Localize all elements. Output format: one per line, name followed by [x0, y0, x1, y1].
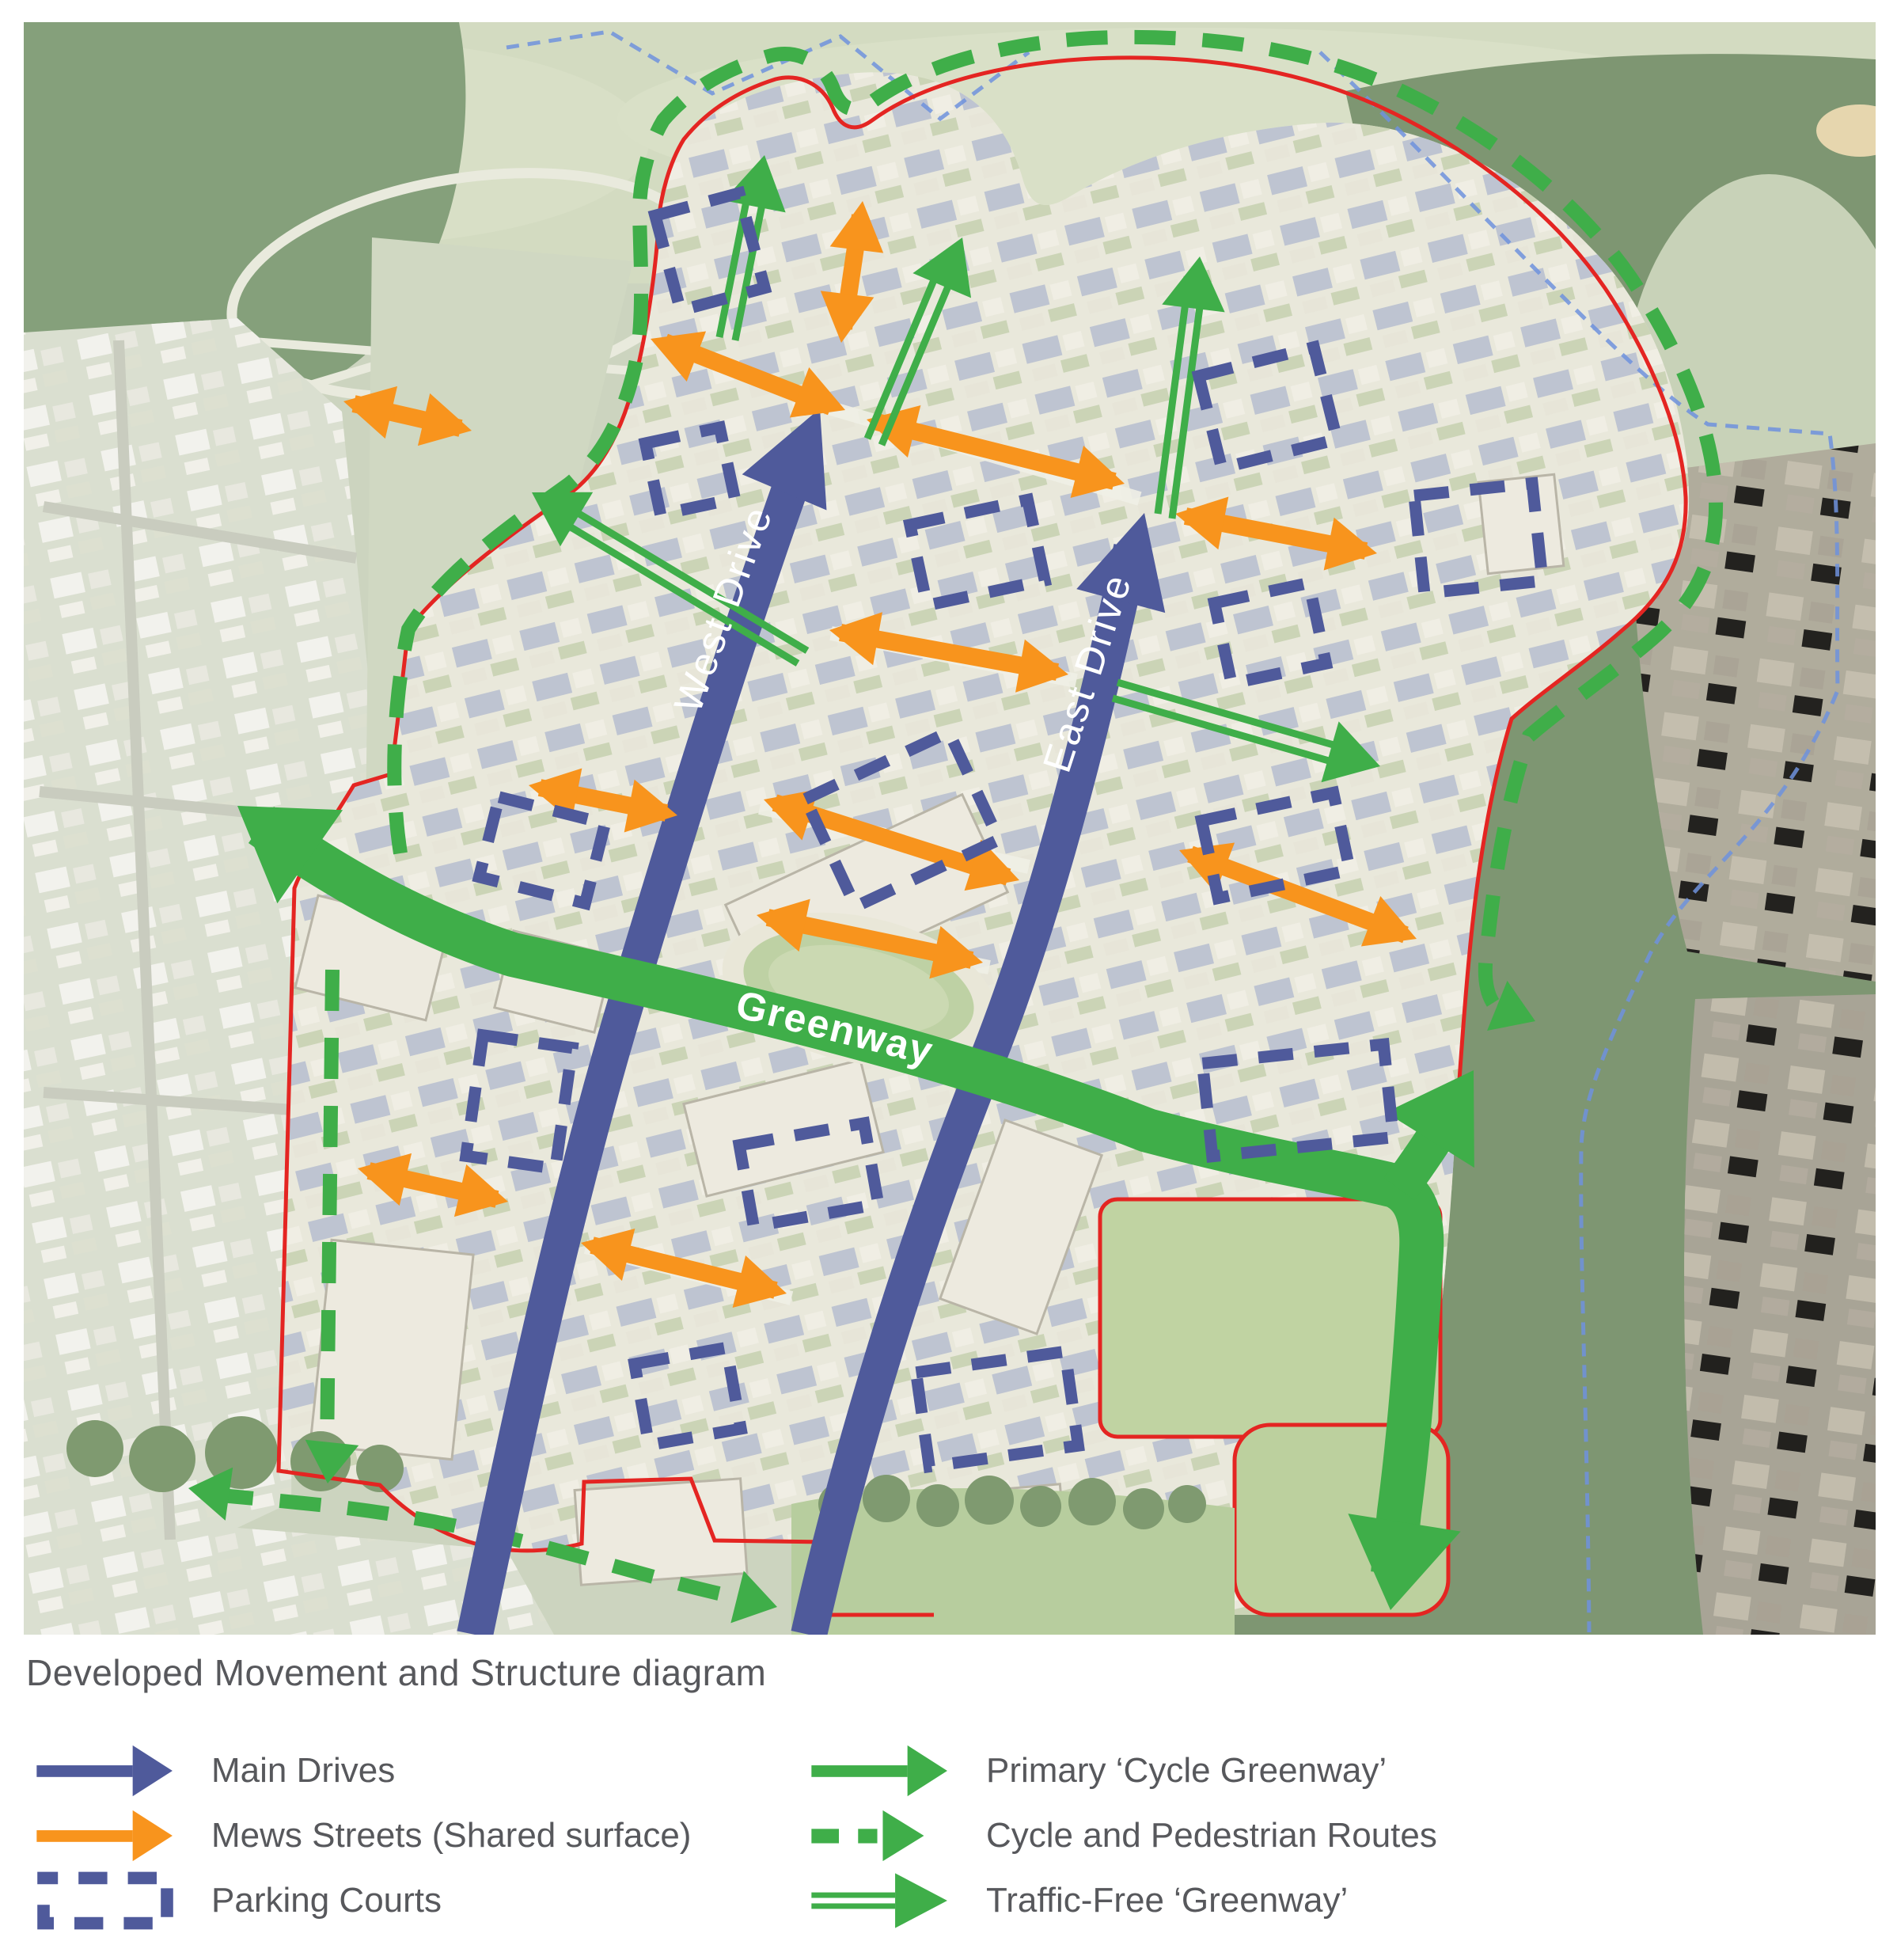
legend-item-mews-streets: Mews Streets (Shared surface) — [26, 1803, 691, 1868]
legend-label: Cycle and Pedestrian Routes — [986, 1816, 1437, 1856]
legend-right-column: Primary ‘Cycle Greenway’ Cycle and Pedes… — [801, 1738, 1437, 1933]
legend-item-main-drives: Main Drives — [26, 1738, 691, 1803]
mews-street-arrow-icon — [26, 1805, 184, 1867]
legend-item-parking-courts: Parking Courts — [26, 1868, 691, 1933]
legend-item-traffic-free-greenway: Traffic-Free ‘Greenway’ — [801, 1868, 1437, 1933]
cycle-greenway-arrow-icon — [801, 1740, 959, 1802]
legend-label: Traffic-Free ‘Greenway’ — [986, 1881, 1348, 1920]
legend-label: Parking Courts — [211, 1881, 442, 1920]
traffic-free-greenway-icon — [801, 1870, 959, 1932]
legend-item-cycle-greenway: Primary ‘Cycle Greenway’ — [801, 1738, 1437, 1803]
map-figure: West Drive East Drive Greenway — [24, 22, 1876, 1635]
legend-label: Mews Streets (Shared surface) — [211, 1816, 691, 1856]
page-root: West Drive East Drive Greenway Developed… — [0, 0, 1897, 1960]
main-drive-arrow-icon — [26, 1740, 184, 1802]
cycle-pedestrian-route-icon — [801, 1805, 959, 1867]
legend-item-cycle-pedestrian-routes: Cycle and Pedestrian Routes — [801, 1803, 1437, 1868]
masterplan-diagram: West Drive East Drive Greenway — [24, 22, 1876, 1635]
legend-left-column: Main Drives Mews Streets (Shared surface… — [26, 1738, 691, 1933]
figure-caption: Developed Movement and Structure diagram — [26, 1651, 766, 1694]
parking-court-icon — [26, 1870, 184, 1932]
legend-label: Main Drives — [211, 1751, 395, 1791]
legend-label: Primary ‘Cycle Greenway’ — [986, 1751, 1387, 1791]
